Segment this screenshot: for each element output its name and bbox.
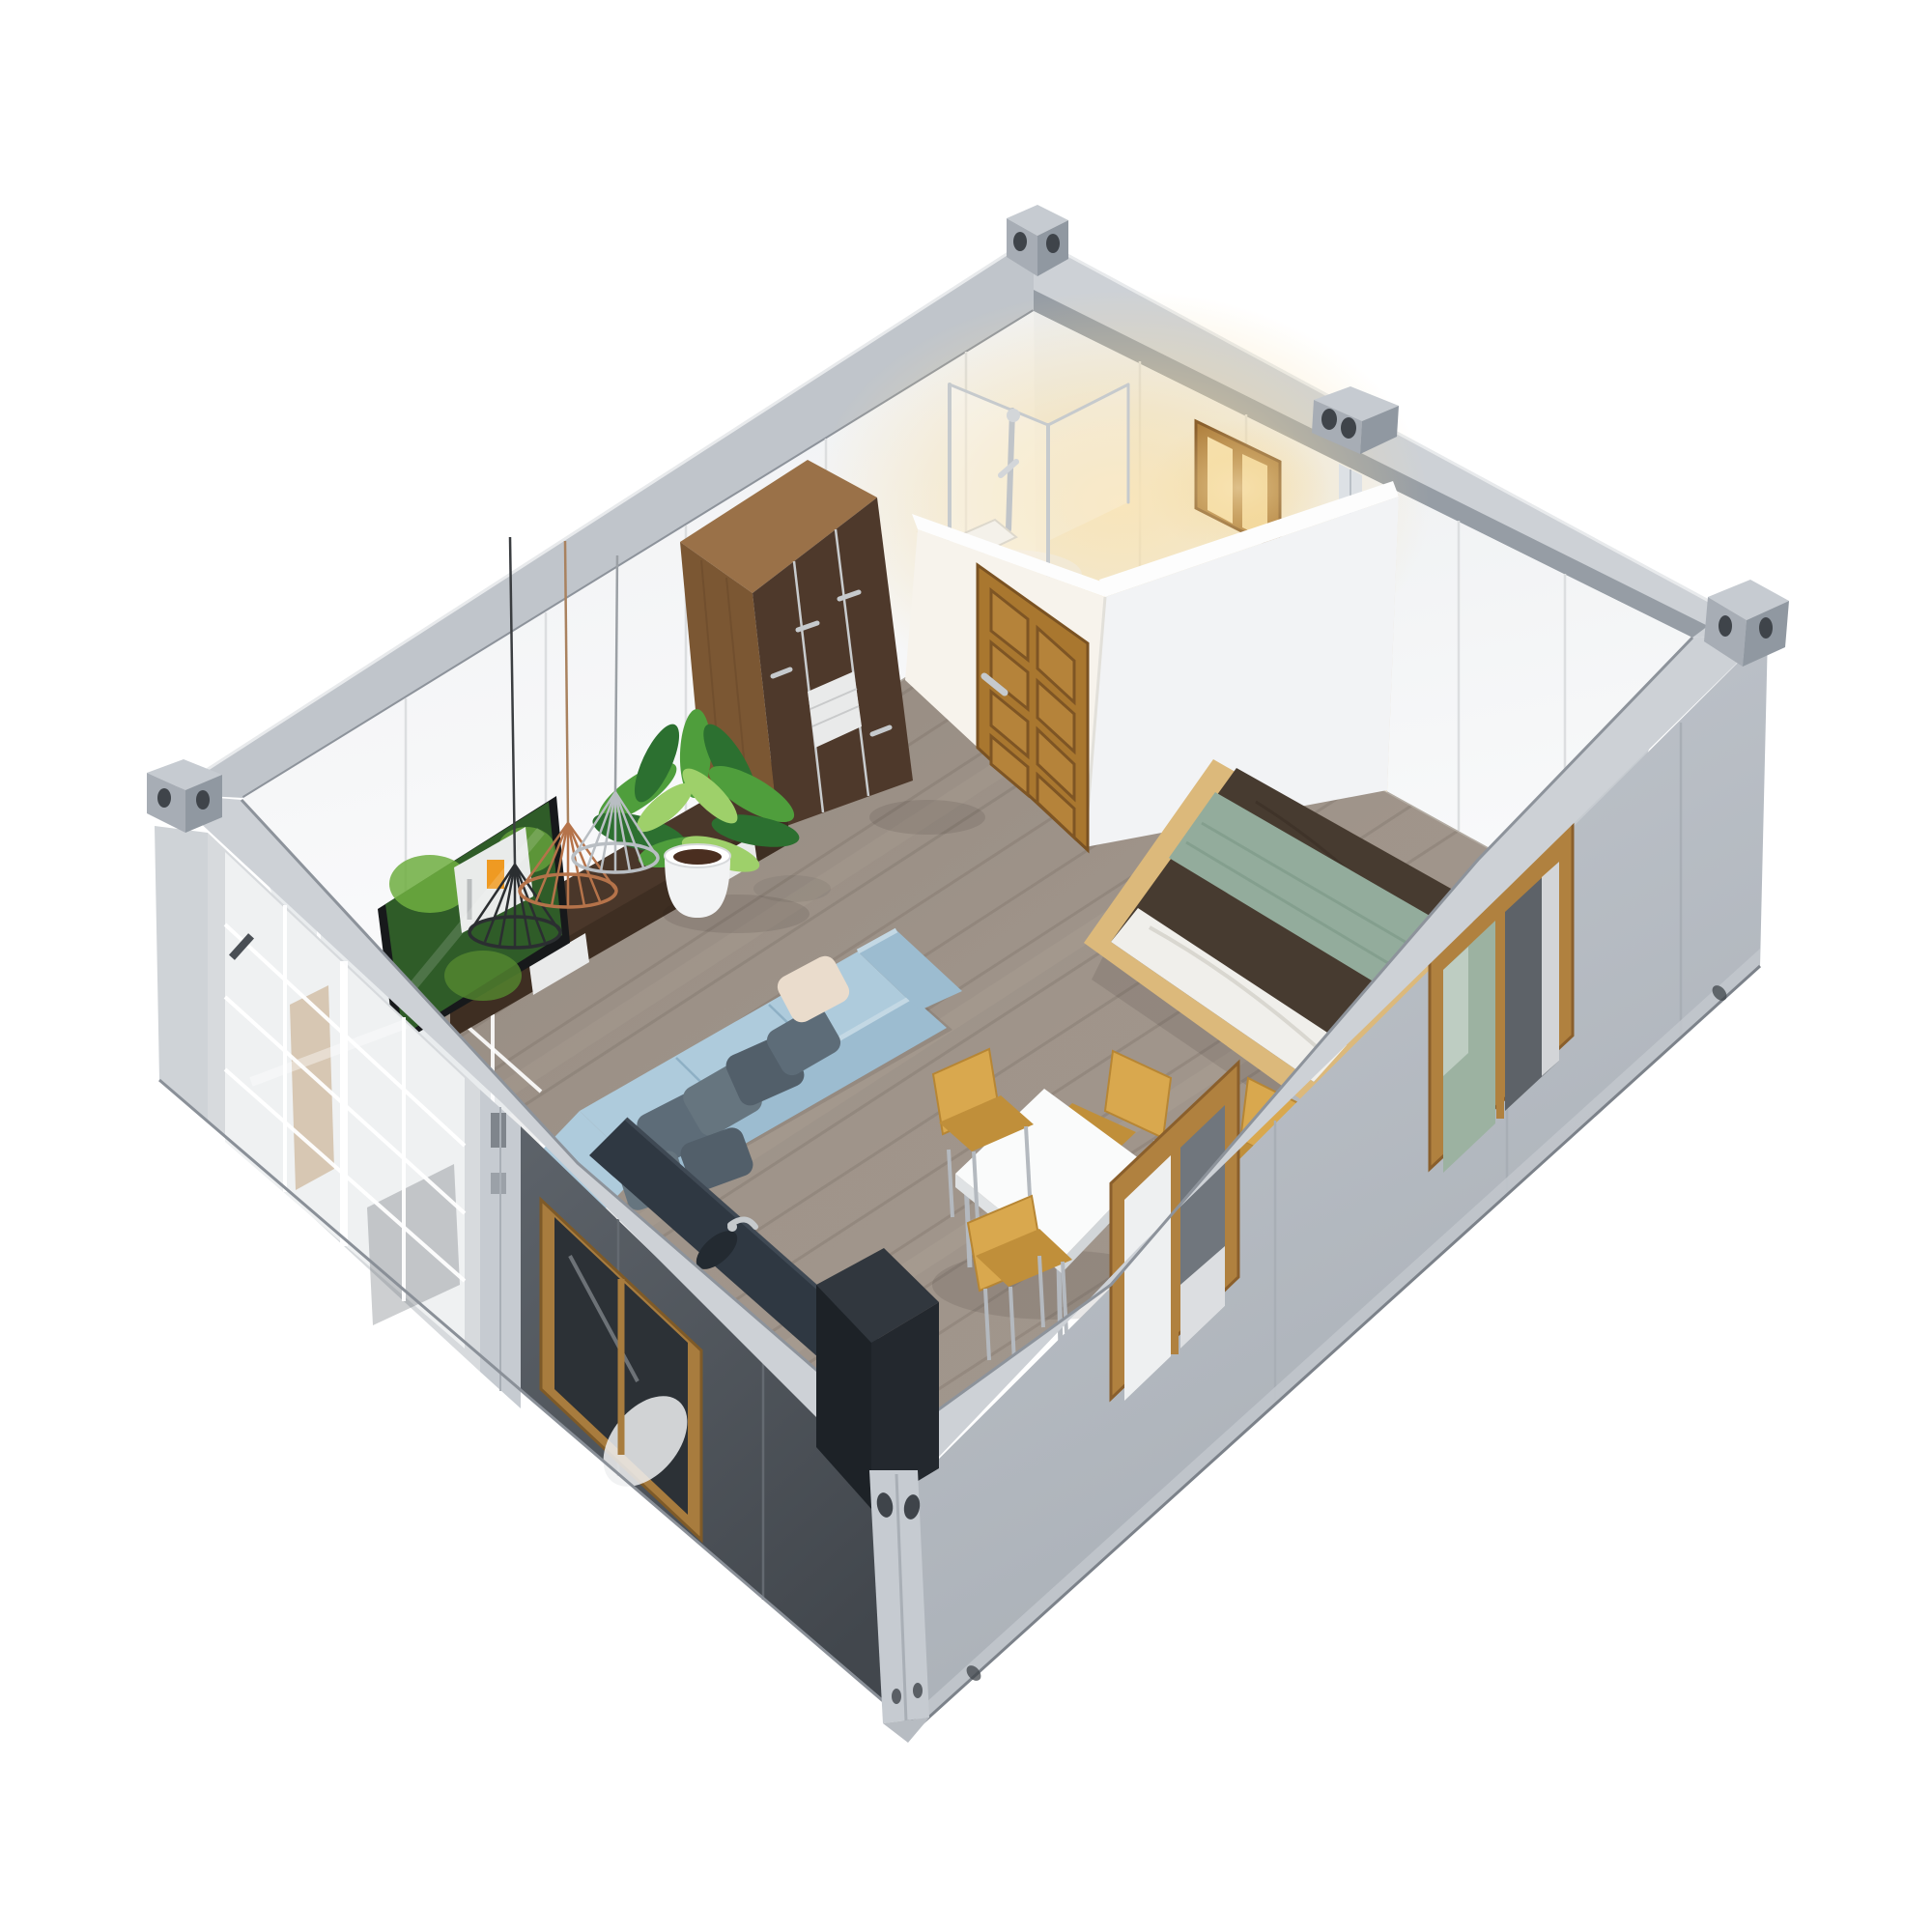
casting-hole bbox=[1321, 409, 1337, 430]
casting-hole bbox=[913, 1683, 923, 1698]
tv-screen-foliage bbox=[444, 951, 522, 1001]
table-leg bbox=[1059, 1264, 1061, 1350]
shower-head bbox=[1007, 409, 1020, 422]
w-corner-trim bbox=[155, 826, 208, 1121]
casting-hole bbox=[1759, 617, 1773, 639]
faucet-base bbox=[727, 1222, 737, 1232]
casting-hole bbox=[892, 1689, 901, 1704]
casting-hole bbox=[196, 790, 210, 810]
casting-hole bbox=[1046, 234, 1060, 253]
casting-hole bbox=[1341, 417, 1356, 439]
container-home-render bbox=[0, 0, 1932, 1932]
wardrobe-shadow bbox=[869, 800, 985, 835]
plant-soil bbox=[673, 849, 722, 865]
render-canvas bbox=[0, 0, 1932, 1932]
leaf-shadow bbox=[753, 875, 831, 902]
casting-hole bbox=[1719, 615, 1732, 637]
post-slot bbox=[491, 1173, 506, 1194]
casting-hole bbox=[157, 788, 171, 808]
casting-hole bbox=[1013, 232, 1027, 251]
post-slot bbox=[491, 1113, 506, 1148]
window-curtain-edge bbox=[1542, 862, 1559, 1076]
